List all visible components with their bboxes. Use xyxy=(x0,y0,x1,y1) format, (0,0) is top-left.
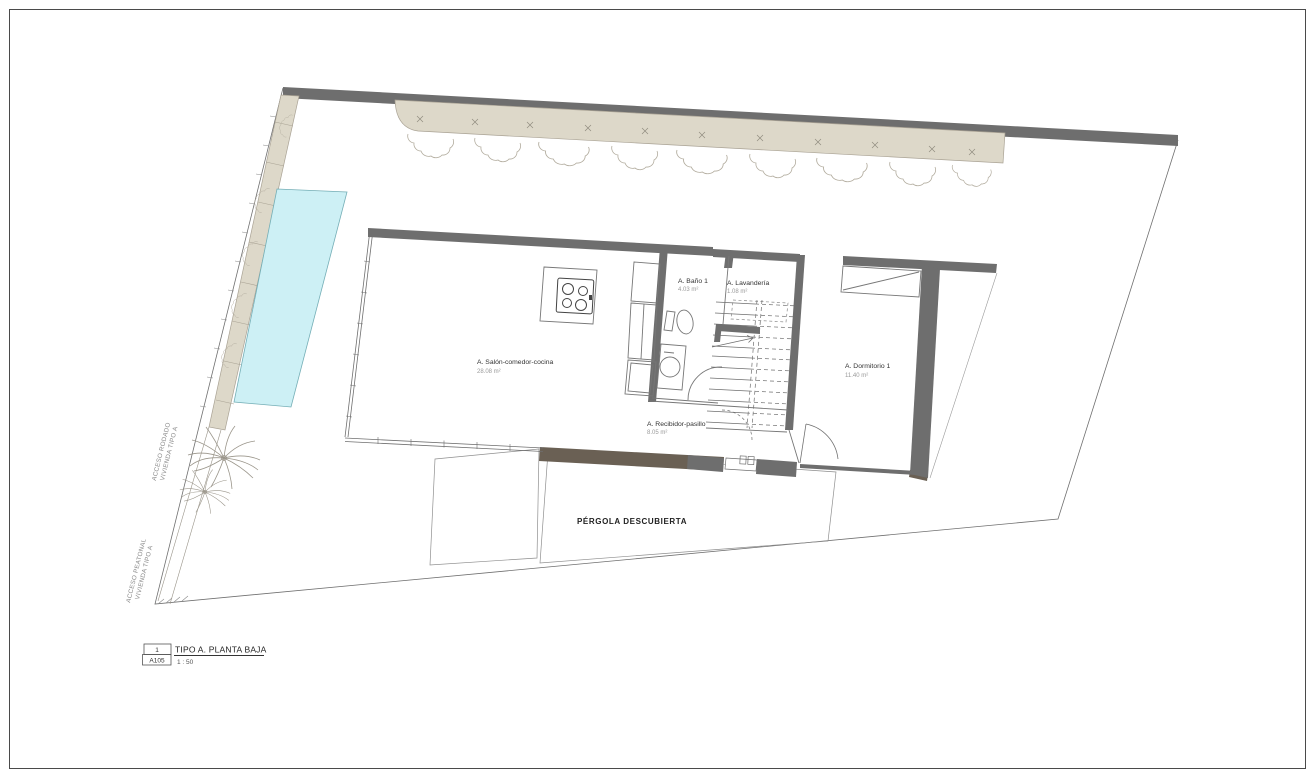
access-label-rodado: ACCESO RODADO VIVIENDA TIPO A xyxy=(151,422,180,484)
bedroom-door xyxy=(800,424,838,463)
sheet-code: A105 xyxy=(149,658,165,665)
drawing-scale: 1 : 50 xyxy=(177,659,194,666)
room-label-salon: A. Salón-comedor-cocina xyxy=(477,359,554,366)
room-label-lavanderia: A. Lavandería xyxy=(727,280,770,287)
house-walls xyxy=(368,228,997,478)
bath-door-arc xyxy=(688,367,722,400)
room-area-lavanderia: 1.08 m² xyxy=(727,289,747,295)
glazing xyxy=(345,230,543,452)
terrace-outline xyxy=(430,449,539,565)
site-boundary xyxy=(155,88,1178,604)
pergola-label: PÉRGOLA DESCUBIERTA xyxy=(577,517,687,526)
title-block: 1 A105 TIPO A. PLANTA BAJA 1 : 50 xyxy=(143,644,267,666)
toilet-icon xyxy=(664,309,695,335)
floor-plan-canvas: A. Salón-comedor-cocina 28.08 m² A. Baño… xyxy=(0,0,1315,778)
detail-number: 1 xyxy=(155,647,159,654)
hall-door-arc-dashed xyxy=(722,410,752,440)
room-area-recibidor: 8.05 m² xyxy=(647,430,667,436)
room-label-bano: A. Baño 1 xyxy=(678,278,708,285)
room-area-bano: 4.03 m² xyxy=(678,287,698,293)
bedroom-closet xyxy=(841,266,921,297)
drawing-sheet: A. Salón-comedor-cocina 28.08 m² A. Baño… xyxy=(0,0,1315,778)
bathroom-fixtures xyxy=(657,309,722,400)
stairs xyxy=(706,300,799,428)
room-labels: A. Salón-comedor-cocina 28.08 m² A. Baño… xyxy=(477,278,891,526)
room-area-dormitorio: 11.40 m² xyxy=(845,373,868,379)
kitchen-island xyxy=(540,267,597,324)
room-area-salon: 28.08 m² xyxy=(477,369,501,375)
drawing-title: TIPO A. PLANTA BAJA xyxy=(175,645,267,655)
room-label-recibidor: A. Recibidor-pasillo xyxy=(647,421,706,428)
sink-icon xyxy=(657,344,686,390)
entry-threshold xyxy=(725,456,757,471)
room-label-dormitorio: A. Dormitorio 1 xyxy=(845,363,891,370)
palm-tree-icon-small xyxy=(180,470,230,514)
interior-partitions xyxy=(650,256,799,463)
access-label-peatonal: ACCESO PEATONAL VIVIENDA TIPO A xyxy=(125,538,156,606)
cooktop-icon xyxy=(556,278,594,314)
